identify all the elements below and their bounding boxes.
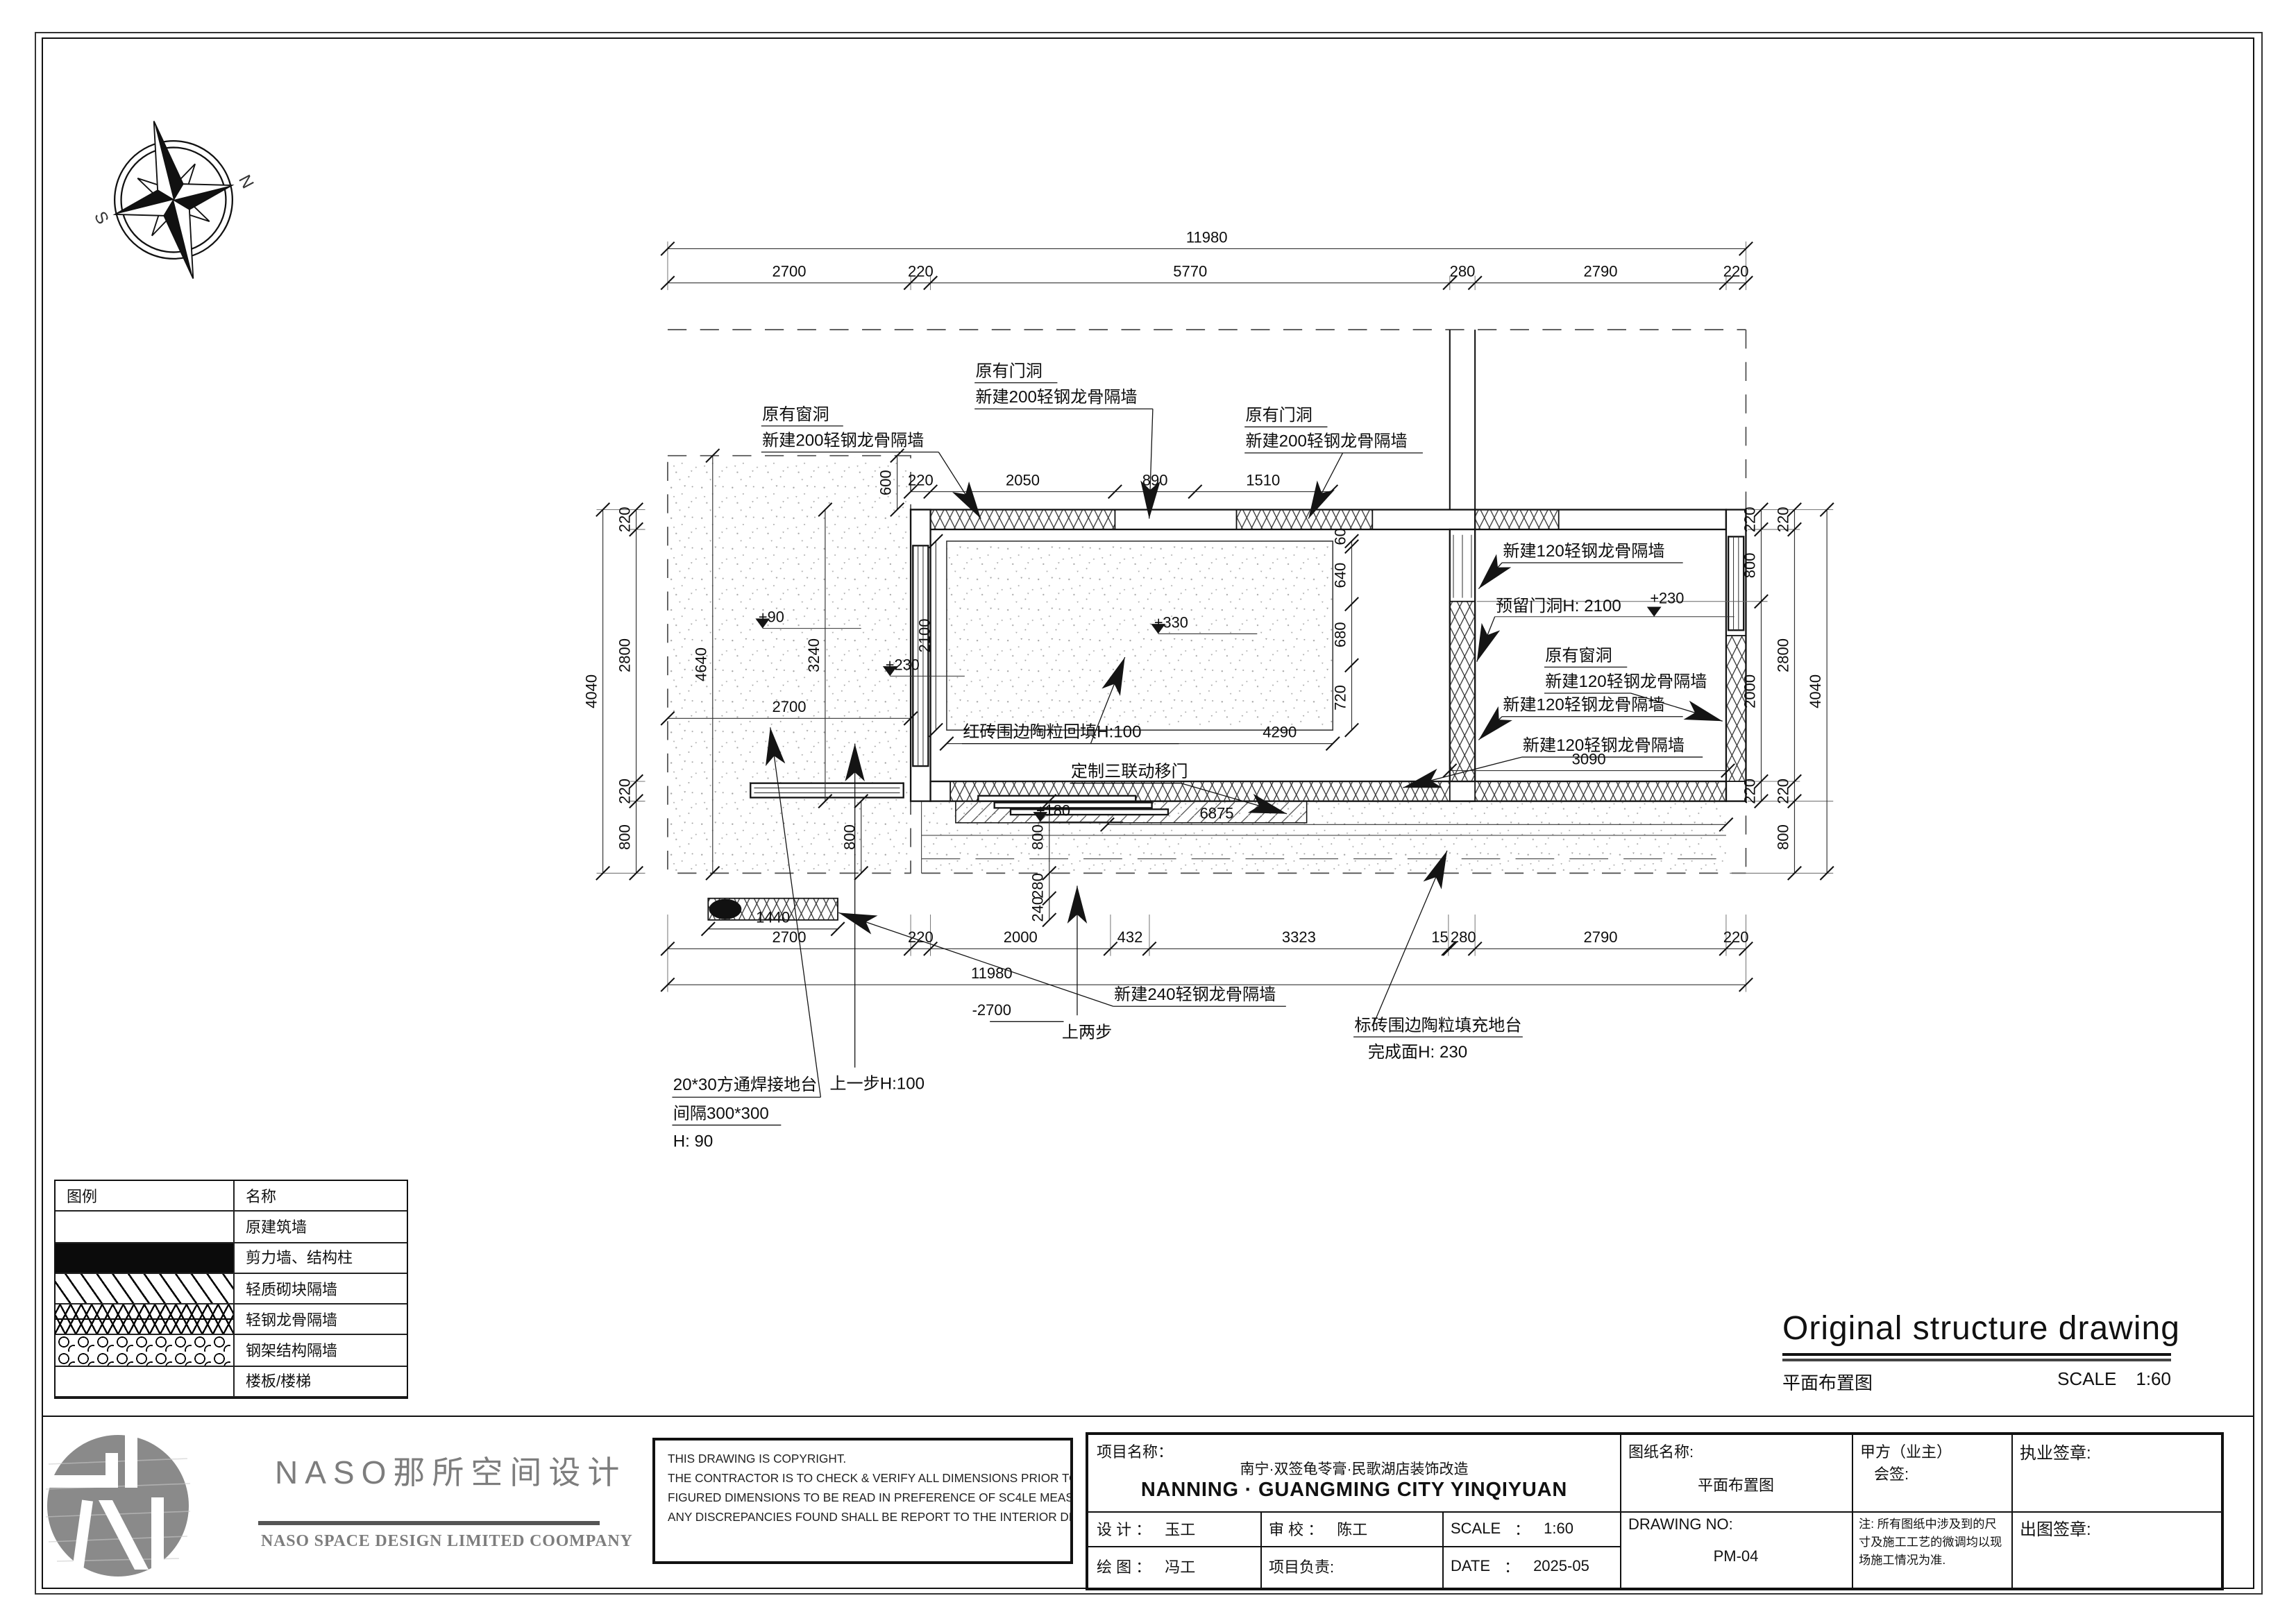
owner-sign-label: 会签: xyxy=(1860,1463,2003,1485)
svg-text:220: 220 xyxy=(1723,263,1749,280)
svg-text:1510: 1510 xyxy=(1246,471,1280,488)
svg-text:预留门洞H: 2100: 预留门洞H: 2100 xyxy=(1496,597,1621,615)
date-value: 2025-05 xyxy=(1533,1558,1589,1575)
drawing-title-en: Original structure drawing xyxy=(1782,1310,2171,1356)
legend-header-name: 名称 xyxy=(235,1181,407,1212)
svg-text:220: 220 xyxy=(908,263,934,280)
svg-text:-2700: -2700 xyxy=(972,1001,1011,1019)
svg-text:2000: 2000 xyxy=(1741,674,1758,708)
svg-text:2700: 2700 xyxy=(773,698,807,715)
copyright-line: FIGURED DIMENSIONS TO BE READ IN PREFERE… xyxy=(668,1489,1058,1509)
svg-text:间隔300*300: 间隔300*300 xyxy=(673,1104,769,1123)
svg-text:4290: 4290 xyxy=(1263,724,1297,741)
svg-text:432: 432 xyxy=(1117,928,1143,946)
svg-text:新建200轻钢龙骨隔墙: 新建200轻钢龙骨隔墙 xyxy=(975,388,1137,407)
legend-swatch-steel-frame xyxy=(56,1336,235,1367)
svg-text:800: 800 xyxy=(1029,824,1047,850)
designer-label: 设 计 ： xyxy=(1097,1518,1151,1540)
svg-text:2790: 2790 xyxy=(1584,263,1618,280)
scale-label: SCALE xyxy=(2057,1368,2116,1394)
svg-text:新建120轻钢龙骨隔墙: 新建120轻钢龙骨隔墙 xyxy=(1523,736,1685,755)
svg-text:2800: 2800 xyxy=(616,638,633,672)
legend-swatch-light-steel xyxy=(56,1305,235,1336)
legend-row-label: 钢架结构隔墙 xyxy=(235,1336,407,1367)
page-scale-wrapper: N S xyxy=(0,0,2296,1623)
svg-text:4640: 4640 xyxy=(693,647,710,681)
svg-text:红砖围边陶粒回填H:100: 红砖围边陶粒回填H:100 xyxy=(963,723,1141,742)
company-name-en: NASO SPACE DESIGN LIMITED COOMPANY xyxy=(261,1531,633,1552)
checker-value: 陈工 xyxy=(1337,1518,1367,1540)
legend-swatch-light-block xyxy=(56,1274,235,1305)
project-lead-cell: 项目负责: xyxy=(1260,1546,1442,1588)
svg-text:新建120轻钢龙骨隔墙: 新建120轻钢龙骨隔墙 xyxy=(1545,672,1707,691)
svg-text:原有门洞: 原有门洞 xyxy=(975,362,1042,381)
svg-text:890: 890 xyxy=(1142,471,1168,488)
drafter-label: 绘 图 ： xyxy=(1097,1556,1151,1578)
scale-value: 1:60 xyxy=(1544,1520,1573,1537)
svg-text:+230: +230 xyxy=(886,656,920,673)
svg-text:上两步: 上两步 xyxy=(1062,1023,1112,1042)
project-name-en: NANNING · GUANGMING CITY YINQIYUAN xyxy=(1088,1479,1620,1502)
date-cell: DATE：2025-05 xyxy=(1442,1546,1620,1588)
svg-text:680: 680 xyxy=(1331,622,1349,647)
drawing-title-block: Original structure drawing 平面布置图 SCALE 1… xyxy=(1782,1310,2171,1394)
legend-header-symbol: 图例 xyxy=(56,1181,235,1212)
legend-row-label: 原建筑墙 xyxy=(235,1212,407,1243)
svg-text:60: 60 xyxy=(1331,528,1349,545)
legend-row-label: 剪力墙、结构柱 xyxy=(235,1243,407,1274)
scale-value: 1:60 xyxy=(2136,1368,2171,1394)
svg-text:新建200轻钢龙骨隔墙: 新建200轻钢龙骨隔墙 xyxy=(1245,432,1407,451)
dim-top-total: 11980 xyxy=(1186,228,1228,246)
svg-text:800: 800 xyxy=(841,824,859,850)
copyright-line: ANY DISCREPANCIES FOUND SHALL BE REPORT … xyxy=(668,1509,1058,1528)
note-cell: 注: 所有图纸中涉及到的尺寸及施工工艺的微调均以现场施工情况为准. xyxy=(1852,1511,2011,1588)
svg-text:2050: 2050 xyxy=(1006,471,1040,488)
owner-label: 甲方（业主） xyxy=(1860,1441,2003,1463)
svg-text:新建120轻钢龙骨隔墙: 新建120轻钢龙骨隔墙 xyxy=(1503,542,1664,561)
svg-text:2790: 2790 xyxy=(1584,928,1618,946)
svg-text:15: 15 xyxy=(1431,928,1449,946)
svg-text:4040: 4040 xyxy=(583,674,600,708)
svg-text:800: 800 xyxy=(616,824,633,850)
concrete-pad xyxy=(947,541,1333,730)
svg-text:280: 280 xyxy=(1450,263,1476,280)
svg-text:新建200轻钢龙骨隔墙: 新建200轻钢龙骨隔墙 xyxy=(762,431,924,450)
svg-text:280: 280 xyxy=(1029,873,1047,899)
drawing-no-value: PM-04 xyxy=(1620,1549,1852,1565)
owner-sign-cell: 甲方（业主） 会签: xyxy=(1852,1435,2011,1511)
license-stamp-label: 执业签章: xyxy=(2020,1441,2091,1464)
svg-text:2700: 2700 xyxy=(773,928,807,946)
svg-text:720: 720 xyxy=(1331,685,1349,711)
svg-text:800: 800 xyxy=(1741,552,1758,578)
legend-row-label: 轻质砌块隔墙 xyxy=(235,1274,407,1305)
svg-text:220: 220 xyxy=(1741,507,1758,532)
svg-text:240: 240 xyxy=(1029,897,1047,922)
sheet-name-value: 平面布置图 xyxy=(1620,1474,1852,1496)
svg-text:新建120轻钢龙骨隔墙: 新建120轻钢龙骨隔墙 xyxy=(1503,696,1664,715)
designer-value: 玉工 xyxy=(1165,1518,1195,1540)
floor-plan: 11980 2700 220 5770 280 2790 220 220 205… xyxy=(541,226,1874,1193)
svg-text:完成面H: 230: 完成面H: 230 xyxy=(1368,1043,1467,1062)
svg-text:4040: 4040 xyxy=(1807,674,1824,708)
svg-text:20*30方通焊接地台: 20*30方通焊接地台 xyxy=(673,1076,818,1094)
legend-row-label: 楼板/楼梯 xyxy=(235,1367,407,1398)
legend-swatch-floor-stairs xyxy=(56,1367,235,1398)
svg-text:220: 220 xyxy=(1774,507,1791,532)
title-band-divider xyxy=(42,1416,2253,1417)
svg-text:11980: 11980 xyxy=(971,965,1013,982)
compass-north-label: N xyxy=(235,172,257,192)
svg-text:新建240轻钢龙骨隔墙: 新建240轻钢龙骨隔墙 xyxy=(1114,985,1276,1004)
svg-text:220: 220 xyxy=(616,779,633,804)
svg-text:220: 220 xyxy=(1774,779,1791,804)
project-name-cell: 项目名称： 南宁·双签龟苓膏·民歌湖店装饰改造 NANNING · GUANGM… xyxy=(1088,1435,1620,1511)
svg-text:640: 640 xyxy=(1331,563,1349,588)
legend-swatch-original-wall xyxy=(56,1212,235,1243)
svg-text:2100: 2100 xyxy=(915,619,933,653)
svg-text:2700: 2700 xyxy=(773,263,807,280)
legend-table: 图例 名称 原建筑墙 剪力墙、结构柱 轻质砌块隔墙 轻钢龙骨隔墙 钢架结构隔墙 … xyxy=(54,1180,408,1399)
svg-text:原有门洞: 原有门洞 xyxy=(1245,406,1312,425)
copyright-line: THE CONTRACTOR IS TO CHECK & VERIFY ALL … xyxy=(668,1470,1058,1489)
svg-text:定制三联动移门: 定制三联动移门 xyxy=(1071,763,1188,781)
svg-text:+330: +330 xyxy=(1154,613,1188,631)
svg-text:3240: 3240 xyxy=(805,638,822,672)
legend-swatch-shear-wall xyxy=(56,1243,235,1274)
checker-label: 审 校 ： xyxy=(1269,1518,1323,1540)
svg-text:标砖围边陶粒填充地台: 标砖围边陶粒填充地台 xyxy=(1354,1016,1521,1035)
drawing-sheet: N S xyxy=(0,0,2296,1623)
copyright-line: THIS DRAWING IS COPYRIGHT. xyxy=(668,1450,1058,1470)
compass-south-label: S xyxy=(90,208,112,227)
drawing-title-cn: 平面布置图 xyxy=(1782,1368,1873,1394)
svg-text:原有窗洞: 原有窗洞 xyxy=(762,405,829,424)
svg-text:800: 800 xyxy=(1774,824,1791,850)
naso-logo xyxy=(44,1432,192,1579)
drafter-value: 冯工 xyxy=(1165,1556,1195,1578)
scale-label: SCALE xyxy=(1451,1520,1501,1537)
svg-text:1440: 1440 xyxy=(756,909,790,926)
drafter-cell: 绘 图 ：冯工 xyxy=(1088,1546,1260,1588)
svg-text:H: 90: H: 90 xyxy=(673,1132,714,1151)
svg-text:+230: +230 xyxy=(1650,589,1684,606)
colon: ： xyxy=(1514,1518,1530,1540)
svg-text:6875: 6875 xyxy=(1199,804,1233,822)
compass-rose-icon: N S xyxy=(82,108,265,291)
sheet-name-label: 图纸名称: xyxy=(1628,1441,1694,1463)
svg-text:+180: +180 xyxy=(1036,801,1070,819)
company-rule xyxy=(258,1521,600,1524)
svg-text:220: 220 xyxy=(908,471,934,488)
company-name-cn: NASO那所空间设计 xyxy=(275,1446,626,1493)
title-rule xyxy=(1782,1359,2171,1361)
drawing-no-label: DRAWING NO: xyxy=(1628,1517,1733,1533)
issue-stamp-label: 出图签章: xyxy=(2020,1517,2091,1540)
project-lead-label: 项目负责: xyxy=(1269,1556,1334,1578)
copyright-notice: THIS DRAWING IS COPYRIGHT. THE CONTRACTO… xyxy=(652,1438,1073,1564)
svg-text:上一步H:100: 上一步H:100 xyxy=(829,1075,925,1094)
svg-text:原有窗洞: 原有窗洞 xyxy=(1545,646,1612,665)
project-name-cn: 南宁·双签龟苓膏·民歌湖店装饰改造 xyxy=(1088,1459,1620,1479)
title-block-table: 项目名称： 南宁·双签龟苓膏·民歌湖店装饰改造 NANNING · GUANGM… xyxy=(1086,1432,2224,1590)
svg-text:5770: 5770 xyxy=(1173,263,1207,280)
legend-row-label: 轻钢龙骨隔墙 xyxy=(235,1305,407,1336)
colon: ： xyxy=(1504,1556,1519,1578)
license-stamp-cell: 执业签章: xyxy=(2011,1435,2221,1511)
svg-text:2000: 2000 xyxy=(1004,928,1038,946)
svg-text:220: 220 xyxy=(1741,779,1758,804)
date-label: DATE xyxy=(1451,1558,1490,1575)
checker-cell: 审 校 ：陈工 xyxy=(1260,1511,1442,1546)
scale-cell: SCALE：1:60 xyxy=(1442,1511,1620,1546)
svg-text:220: 220 xyxy=(1723,928,1749,946)
svg-text:600: 600 xyxy=(877,470,895,495)
svg-text:220: 220 xyxy=(616,507,633,532)
sheet-name-cell: 图纸名称: 平面布置图 xyxy=(1620,1435,1852,1511)
note-text: 注: 所有图纸中涉及到的尺寸及施工工艺的微调均以现场施工情况为准. xyxy=(1852,1511,2011,1573)
issue-stamp-cell: 出图签章: xyxy=(2011,1511,2221,1588)
svg-text:3323: 3323 xyxy=(1282,928,1316,946)
designer-cell: 设 计 ：玉工 xyxy=(1088,1511,1260,1546)
svg-text:2800: 2800 xyxy=(1774,638,1791,672)
svg-text:+90: +90 xyxy=(759,609,784,626)
drawing-no-cell: DRAWING NO: PM-04 xyxy=(1620,1511,1852,1588)
